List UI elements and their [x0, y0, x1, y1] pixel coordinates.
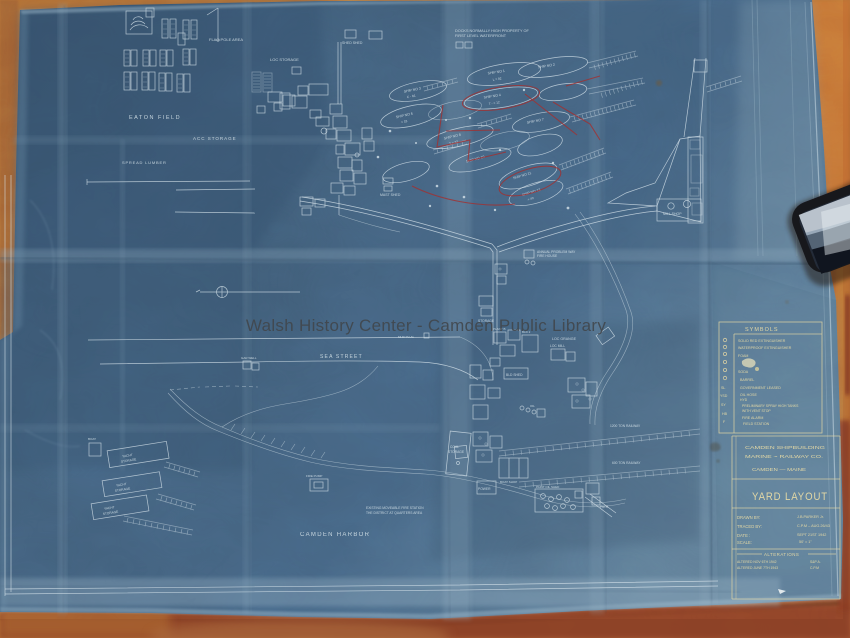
svg-text:PRELIMINARY SPRAY HIGH TANK: PRELIMINARY SPRAY HIGH TANKS	[742, 404, 799, 408]
svg-text:ACC STORAGE: ACC STORAGE	[193, 136, 237, 141]
svg-text:TRACED BY:: TRACED BY:	[737, 524, 762, 529]
svg-text:C.P.M: C.P.M	[810, 566, 819, 570]
svg-text:FIRE ALARM: FIRE ALARM	[742, 416, 763, 420]
svg-text:WITH VENT STOP: WITH VENT STOP	[742, 409, 771, 413]
svg-text:DATE :: DATE :	[737, 533, 750, 538]
svg-text:YSD: YSD	[720, 394, 728, 398]
svg-text:LOC STORAGE: LOC STORAGE	[270, 57, 299, 62]
svg-text:CAMDEN HARBOR: CAMDEN HARBOR	[300, 532, 370, 538]
svg-text:FIRE PUMP: FIRE PUMP	[306, 474, 322, 478]
svg-text:PAINT OIL SHED: PAINT OIL SHED	[536, 485, 560, 489]
svg-text:LOC MILL: LOC MILL	[550, 344, 565, 348]
svg-text:FIELD STATION: FIELD STATION	[743, 422, 770, 426]
svg-text:GOVERNMENT LEASED: GOVERNMENT LEASED	[740, 386, 781, 390]
svg-text:POWER: POWER	[478, 487, 491, 491]
svg-text:LOC GRANGE: LOC GRANGE	[552, 337, 577, 341]
svg-text:EATON FIELD: EATON FIELD	[129, 115, 181, 121]
svg-text:ALTERED NOV 6TH 1942: ALTERED NOV 6TH 1942	[737, 560, 777, 564]
svg-text:SEA STREET: SEA STREET	[320, 354, 363, 360]
svg-text:BOAT: BOAT	[88, 437, 96, 441]
svg-text:DRAWN BY:: DRAWN BY:	[737, 515, 760, 520]
svg-text:J.B.PARKER Jr.: J.B.PARKER Jr.	[797, 515, 824, 519]
svg-text:OIL HOSE: OIL HOSE	[740, 393, 757, 397]
svg-text:50' = 1": 50' = 1"	[799, 540, 812, 544]
svg-text:WATERPROOF EXTINGUISHER: WATERPROOF EXTINGUISHER	[738, 346, 792, 350]
svg-text:YARD LAYOUT: YARD LAYOUT	[752, 491, 828, 503]
svg-text:THE DISTRICT AT QUARTERS AREA: THE DISTRICT AT QUARTERS AREA	[366, 511, 423, 515]
svg-text:MAST SHED: MAST SHED	[380, 193, 401, 197]
svg-text:MHD PLUG: MHD PLUG	[398, 335, 415, 339]
svg-text:SYMBOLS: SYMBOLS	[745, 327, 779, 333]
svg-text:SPREAD LUMBER: SPREAD LUMBER	[122, 160, 167, 165]
svg-text:C.P.M – AUG.26/43: C.P.M – AUG.26/43	[797, 524, 830, 528]
svg-text:HB: HB	[722, 412, 728, 416]
svg-text:OIL: OIL	[530, 404, 535, 408]
svg-text:FIRE HOUSE: FIRE HOUSE	[537, 254, 558, 258]
svg-text:SODA: SODA	[738, 370, 749, 374]
svg-text:S&P A.: S&P A.	[810, 560, 821, 564]
svg-text:BARREL: BARREL	[740, 378, 754, 382]
svg-text:SL: SL	[721, 386, 725, 390]
svg-text:MARINE ~ RAILWAY CO.: MARINE ~ RAILWAY CO.	[745, 454, 823, 459]
svg-text:CAMDEN — MAINE: CAMDEN — MAINE	[752, 467, 806, 472]
svg-text:SHED SHED: SHED SHED	[342, 41, 363, 45]
svg-text:BLD SHED: BLD SHED	[506, 373, 523, 377]
svg-text:Walsh History Center - Camden: Walsh History Center - Camden Public Lib…	[246, 316, 606, 335]
svg-text:FLAG POLE AREA: FLAG POLE AREA	[209, 37, 243, 42]
svg-text:SCALE:: SCALE:	[737, 540, 752, 545]
svg-text:FIRST LEVEL WATERFRONT: FIRST LEVEL WATERFRONT	[455, 34, 507, 38]
svg-text:FOAM: FOAM	[738, 354, 748, 358]
svg-text:1200 TON RAILWAY: 1200 TON RAILWAY	[610, 424, 641, 428]
svg-text:MILL SHOP: MILL SHOP	[663, 212, 682, 216]
svg-text:SOLID RED EXTINGUISHER: SOLID RED EXTINGUISHER	[738, 339, 786, 343]
svg-text:CAMDEN SHIPBUILDING: CAMDEN SHIPBUILDING	[745, 445, 826, 450]
svg-text:BOAT SHOP: BOAT SHOP	[500, 480, 517, 484]
svg-text:600 TON RAILWAY: 600 TON RAILWAY	[612, 461, 641, 465]
svg-text:DOCKS NORMALLY HIGH PROPERTY O: DOCKS NORMALLY HIGH PROPERTY OF	[455, 29, 529, 33]
svg-text:HYD: HYD	[740, 398, 748, 402]
svg-text:STORAGE: STORAGE	[448, 450, 465, 454]
svg-text:EXISTING MOVEABLE FIRE STATION: EXISTING MOVEABLE FIRE STATION	[366, 506, 424, 510]
svg-text:ALTERED JUNE 7TH 1943: ALTERED JUNE 7TH 1943	[737, 566, 778, 570]
svg-text:ALTERATIONS: ALTERATIONS	[764, 552, 799, 557]
svg-text:GAR WELL: GAR WELL	[241, 356, 257, 360]
svg-text:SY: SY	[721, 403, 726, 407]
svg-text:SEPT 21ST 1942: SEPT 21ST 1942	[797, 533, 826, 537]
